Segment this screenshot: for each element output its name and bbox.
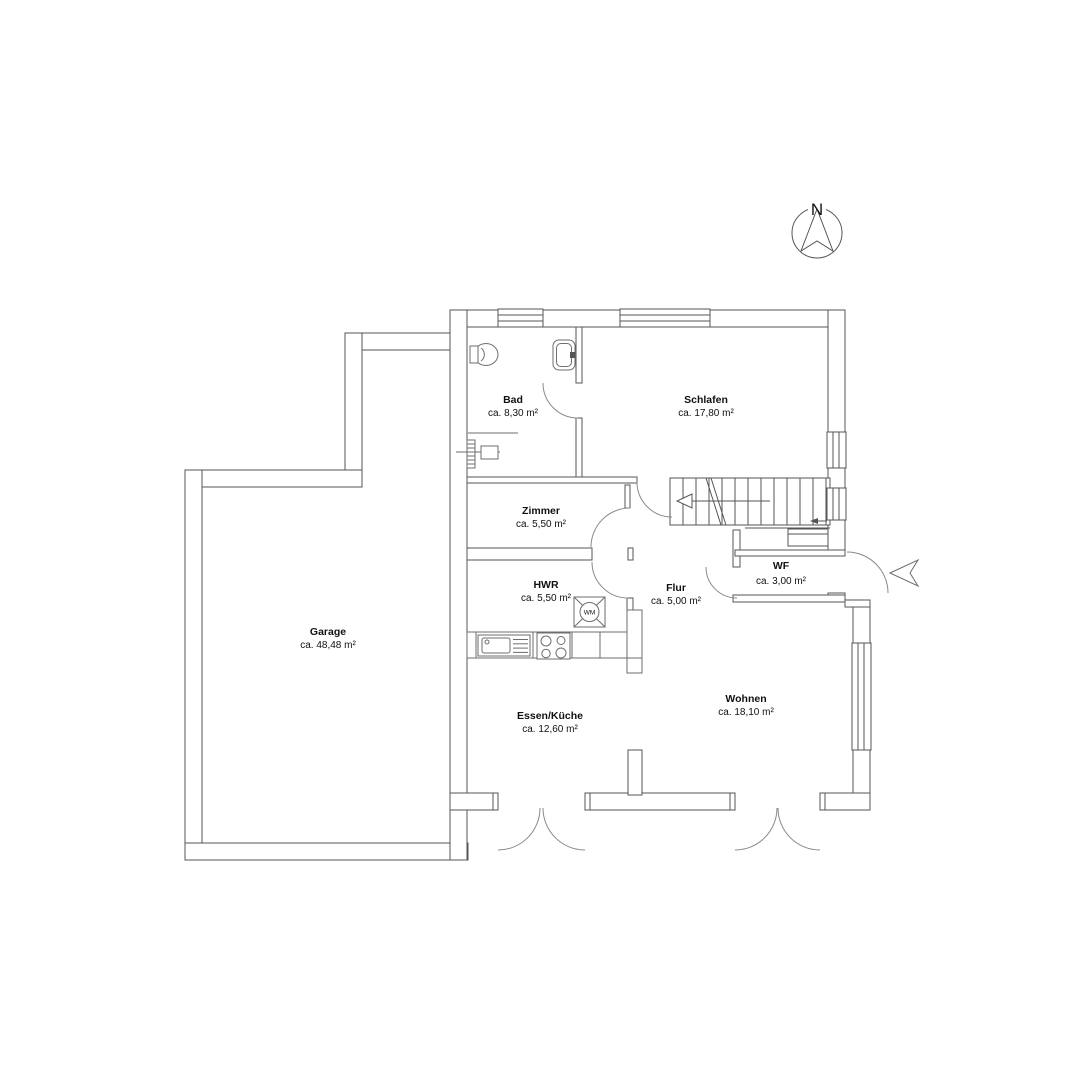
door-arc-terrace-left-a <box>498 808 540 850</box>
window-wohnen-right <box>852 643 871 750</box>
room-label-bad: Bad ca. 8,30 m² <box>488 394 539 419</box>
window-stairs-right <box>827 488 846 520</box>
room-area: ca. 18,10 m² <box>718 707 774 718</box>
stairs <box>670 478 830 546</box>
window-schlafen-right <box>827 432 846 468</box>
wall-bottom-left <box>450 793 498 810</box>
wall-wf-top <box>735 550 845 556</box>
door-arc-hwr <box>592 562 628 598</box>
room-area: ca. 5,50 m² <box>521 593 572 604</box>
wall-wf-bottom <box>733 595 845 602</box>
wall-hwr-flur-column <box>627 598 633 610</box>
entrance-arrow-icon <box>890 560 918 586</box>
window-bad-top <box>498 309 543 327</box>
bathroom-sink-icon <box>553 340 575 370</box>
garage-wall-body-top <box>185 470 362 487</box>
room-name: Essen/Küche <box>517 710 583 722</box>
door-arc-zimmer <box>591 508 630 547</box>
wall-bad-zimmer <box>467 477 637 483</box>
room-label-schlafen: Schlafen ca. 17,80 m² <box>678 394 734 419</box>
room-name: Bad <box>503 394 523 406</box>
wall-bottom-middle <box>585 793 735 810</box>
door-arc-terrace-right-a <box>735 808 777 850</box>
washing-machine-icon: WM <box>574 597 605 627</box>
room-label-flur: Flur ca. 5,00 m² <box>651 582 702 607</box>
door-arc-schlafen <box>637 482 672 517</box>
room-label-garage: Garage ca. 48,48 m² <box>300 626 356 651</box>
room-name: Flur <box>666 582 686 594</box>
wall-left <box>450 310 467 810</box>
faucet-icon <box>570 352 575 358</box>
room-area: ca. 5,50 m² <box>516 519 567 530</box>
door-arc-wf <box>706 567 737 598</box>
room-name: Zimmer <box>522 505 560 517</box>
room-name: WF <box>773 560 790 572</box>
room-label-essen-kueche: Essen/Küche ca. 12,60 m² <box>517 710 583 735</box>
room-name: Wohnen <box>725 693 766 705</box>
garage-wall-arm-left <box>345 333 362 487</box>
door-jamb <box>585 793 590 810</box>
understair-closet <box>788 529 828 546</box>
door-jamb <box>493 793 498 810</box>
compass-label: N <box>811 200 823 219</box>
room-label-wf: WF ca. 3,00 m² <box>756 560 807 587</box>
wall-bad-schlafen-upper <box>576 327 582 383</box>
garage-wall-body-left <box>185 470 202 860</box>
wall-zimmer-hwr <box>467 548 592 560</box>
room-name: Schlafen <box>684 394 728 406</box>
room-area: ca. 5,00 m² <box>651 596 702 607</box>
wall-bottom-right <box>820 793 870 810</box>
floor-plan: WM N <box>0 0 1080 1080</box>
door-arc-entrance <box>847 552 888 593</box>
toilet-icon <box>470 344 498 366</box>
door-arc-terrace-left-b <box>543 808 585 850</box>
door-arc-terrace-right-b <box>778 808 820 850</box>
room-area: ca. 48,48 m² <box>300 640 356 651</box>
wall-wf-left <box>733 530 740 567</box>
room-labels: Bad ca. 8,30 m² Schlafen ca. 17,80 m² Zi… <box>300 394 806 735</box>
garage-wall-bottom <box>185 843 468 860</box>
garage-walls <box>185 333 468 860</box>
compass-north-icon: N <box>792 200 842 258</box>
room-label-zimmer: Zimmer ca. 5,50 m² <box>516 505 567 530</box>
wall-cap-hwr-door <box>628 548 633 560</box>
room-area: ca. 3,00 m² <box>756 576 807 587</box>
kitchen-fixtures <box>467 610 642 673</box>
door-jamb <box>730 793 735 810</box>
stove-icon <box>537 633 570 659</box>
door-arc-bad <box>543 383 578 418</box>
washing-machine-label: WM <box>584 610 596 617</box>
wall-bad-schlafen-lower <box>576 418 582 477</box>
room-name: HWR <box>533 579 558 591</box>
wall-zimmer-right <box>625 485 630 508</box>
garage-wall-right <box>450 810 467 860</box>
room-area: ca. 8,30 m² <box>488 408 539 419</box>
room-name: Garage <box>310 626 346 638</box>
room-area: ca. 17,80 m² <box>678 408 734 419</box>
room-label-wohnen: Wohnen ca. 18,10 m² <box>718 693 774 718</box>
tall-cabinet <box>627 610 642 673</box>
kitchen-sink-icon <box>478 635 530 656</box>
window-schlafen-top <box>620 309 710 327</box>
chimney-pillar <box>628 750 642 795</box>
door-jamb <box>820 793 825 810</box>
room-label-hwr: HWR ca. 5,50 m² <box>521 579 572 604</box>
wall-bumpout-top <box>845 600 870 607</box>
room-area: ca. 12,60 m² <box>522 724 578 735</box>
